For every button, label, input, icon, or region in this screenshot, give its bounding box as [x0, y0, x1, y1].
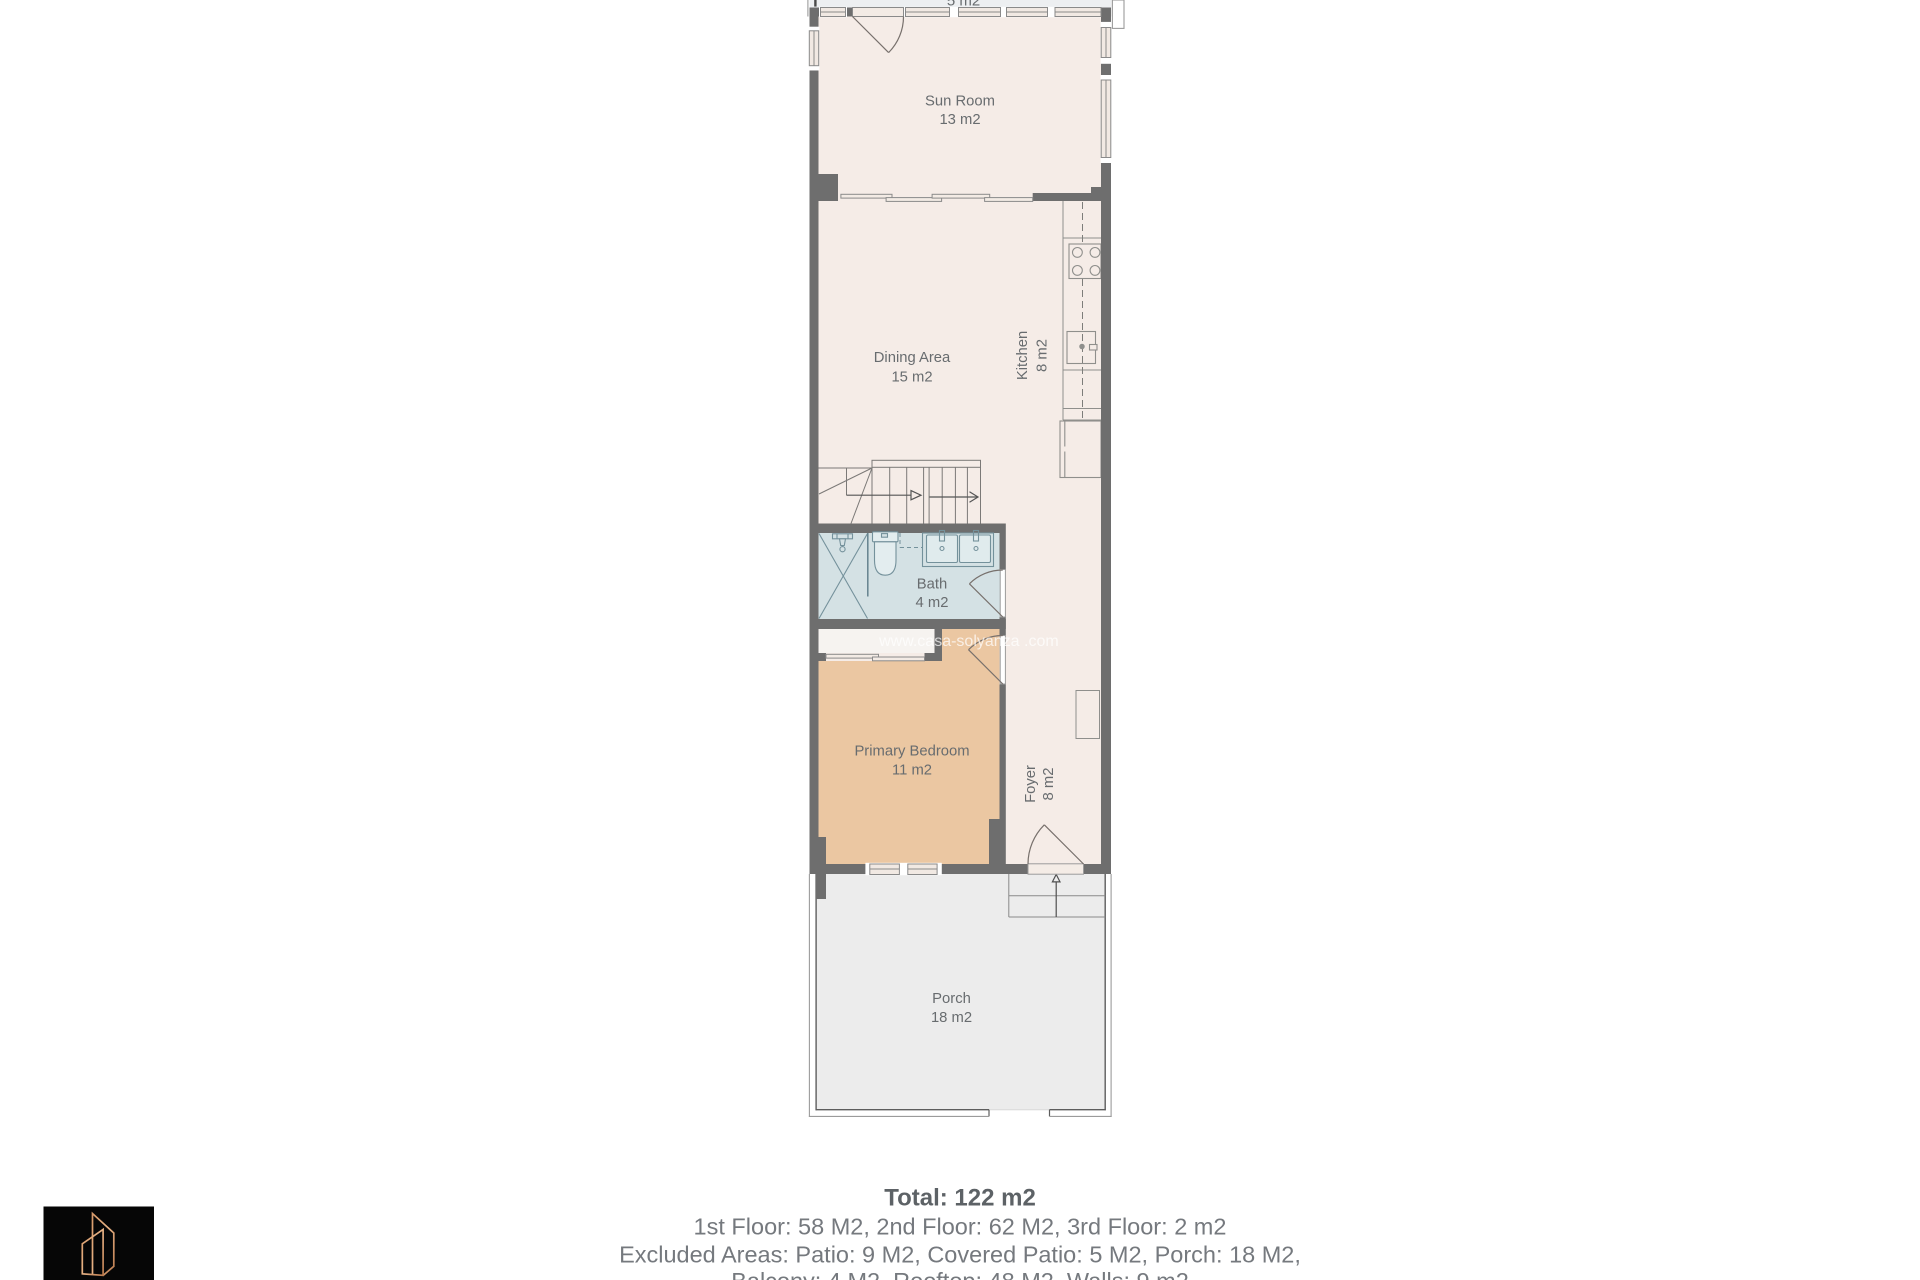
svg-text:4 m2: 4 m2	[916, 595, 949, 611]
svg-text:Balcony: 4 M2, Rooftop: 48 M2,: Balcony: 4 M2, Rooftop: 48 M2, Walls: 9 …	[731, 1268, 1189, 1280]
svg-text:11 m2: 11 m2	[892, 763, 932, 779]
svg-text:Excluded Areas: Patio: 9 M2, C: Excluded Areas: Patio: 9 M2, Covered Pat…	[619, 1242, 1301, 1268]
svg-text:18 m2: 18 m2	[931, 1010, 972, 1026]
svg-text:8 m2: 8 m2	[1041, 768, 1057, 801]
svg-text:Kitchen: Kitchen	[1015, 331, 1031, 380]
svg-text:Total: 122 m2: Total: 122 m2	[884, 1185, 1036, 1212]
svg-text:Dining Area: Dining Area	[874, 350, 951, 366]
svg-text:Sun Room: Sun Room	[925, 93, 995, 109]
svg-text:8 m2: 8 m2	[1035, 339, 1051, 372]
svg-text:Porch: Porch	[932, 991, 971, 1007]
svg-text:Foyer: Foyer	[1023, 765, 1039, 803]
svg-text:13 m2: 13 m2	[939, 112, 980, 128]
svg-text:Bath: Bath	[917, 577, 947, 593]
svg-text:1st Floor: 58 M2, 2nd Floor: 6: 1st Floor: 58 M2, 2nd Floor: 62 M2, 3rd …	[694, 1214, 1227, 1240]
svg-text:Primary Bedroom: Primary Bedroom	[854, 744, 969, 760]
svg-text:www.casa-solyanza .com: www.casa-solyanza .com	[878, 633, 1059, 650]
svg-text:15 m2: 15 m2	[891, 370, 932, 386]
